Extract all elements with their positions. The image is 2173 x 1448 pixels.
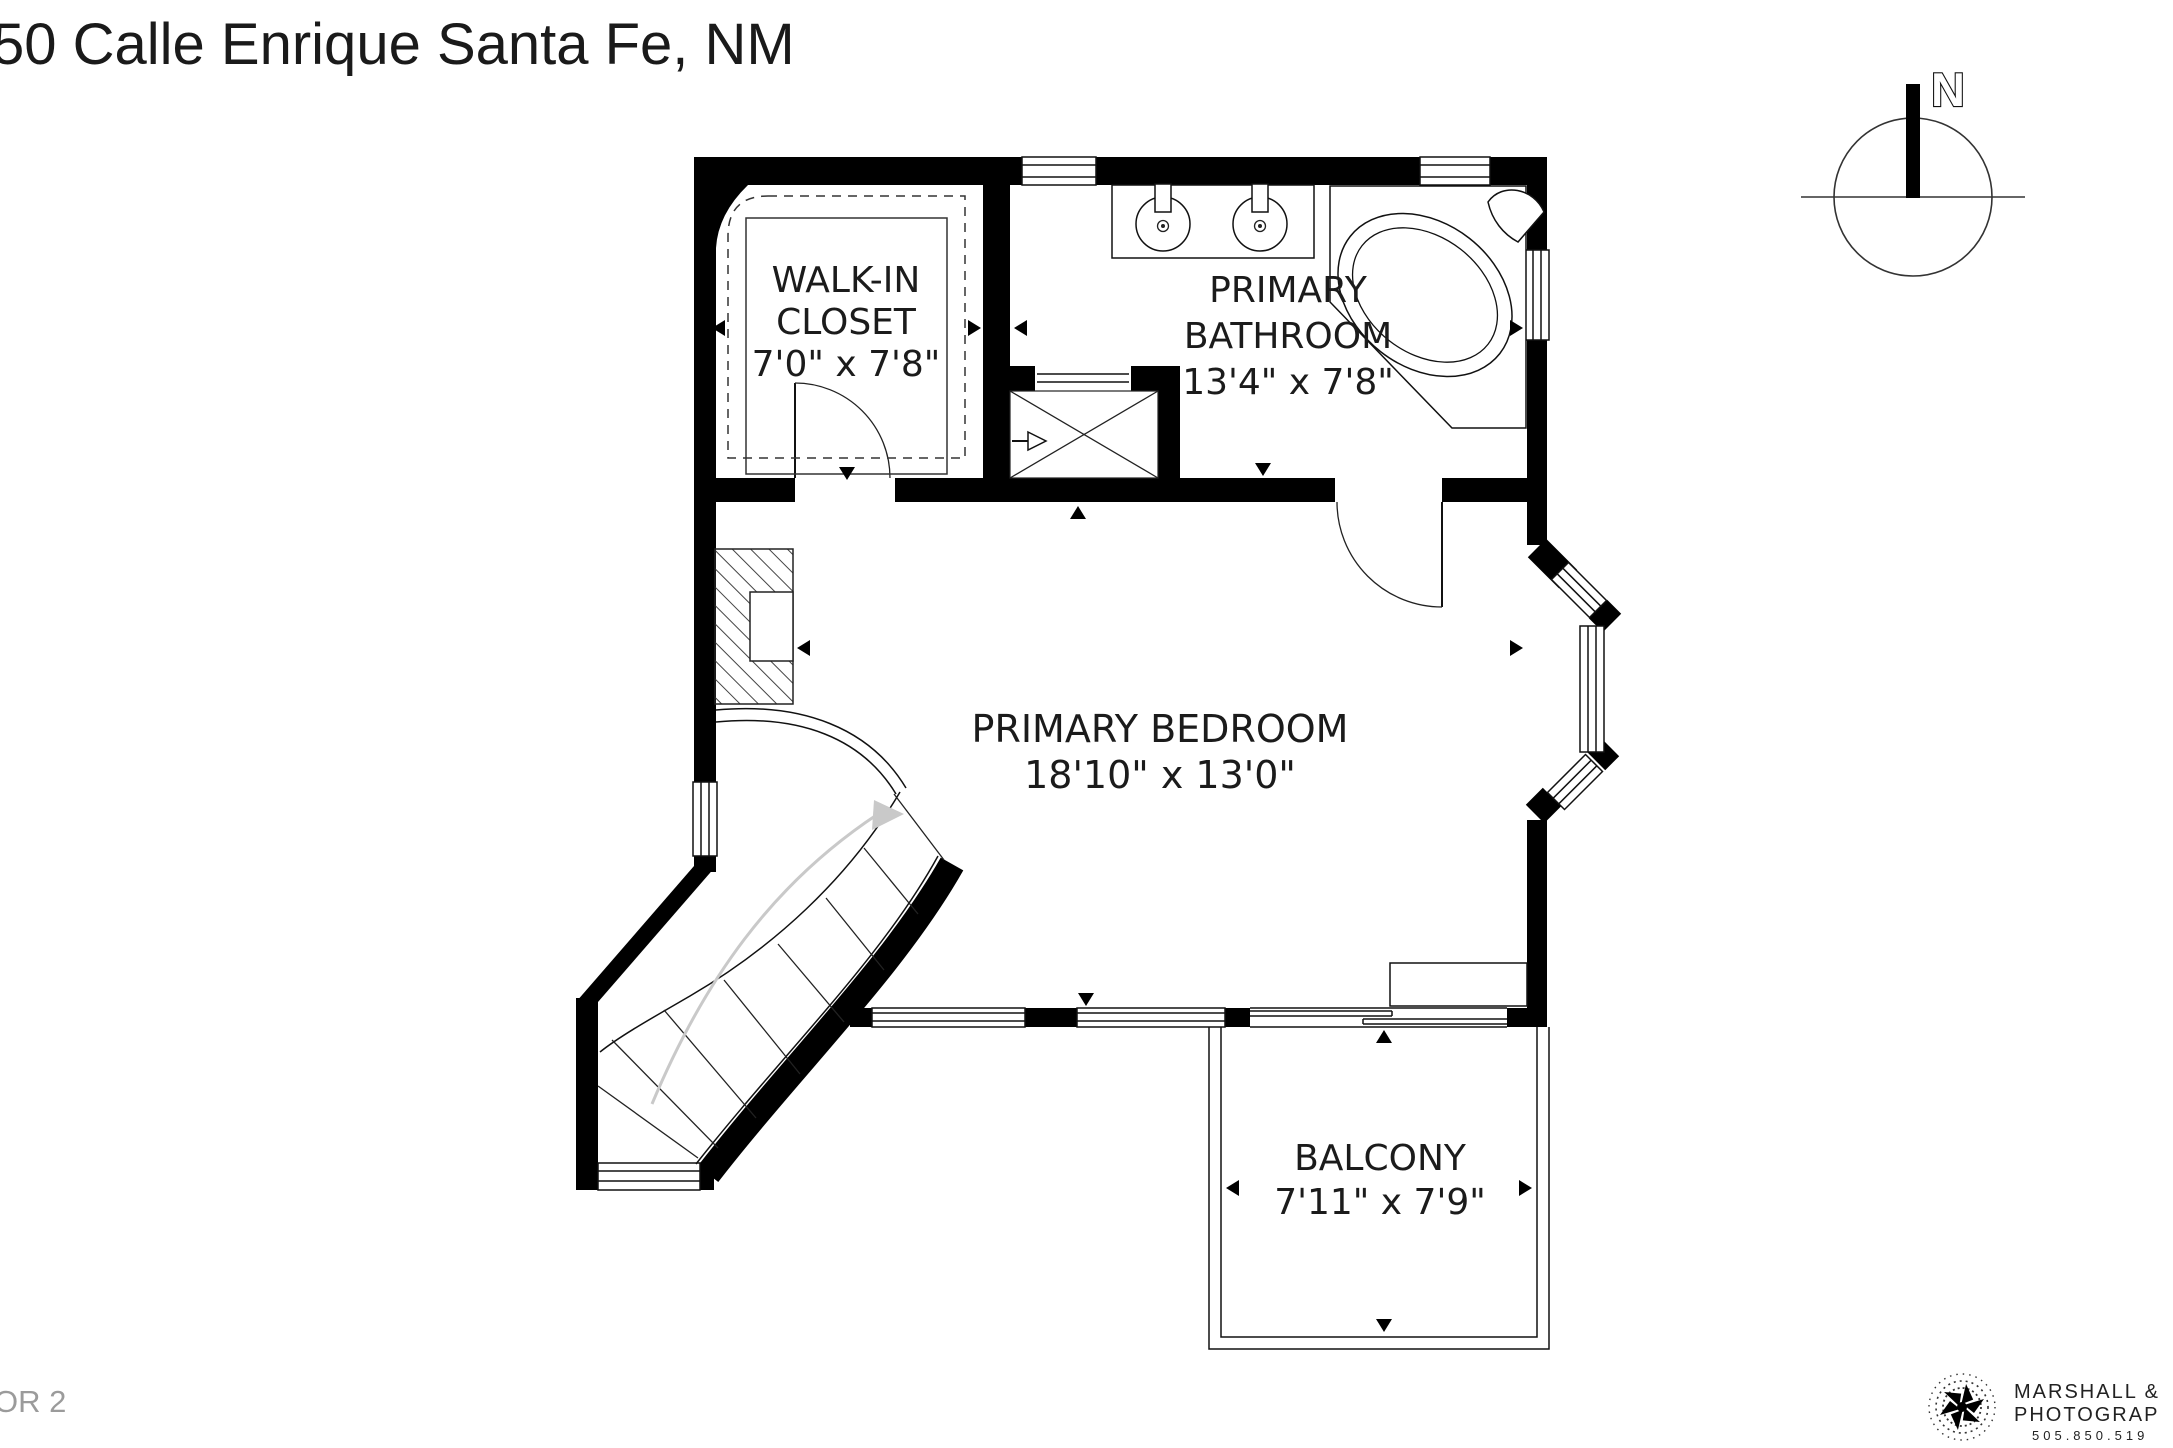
window-bathroom-right — [1525, 250, 1549, 340]
window-bedroom-left — [693, 782, 717, 856]
vanity-double-sink — [1112, 184, 1314, 258]
logo-phone: 505.850.519 — [2032, 1428, 2148, 1443]
page-title: 50 Calle Enrique Santa Fe, NM — [0, 12, 795, 77]
faucet-left-icon — [1155, 184, 1171, 212]
door-closet — [795, 383, 893, 502]
bedroom-dimensions: 18'10" x 13'0" — [1024, 753, 1296, 797]
logo-company-line2: PHOTOGRAP — [2014, 1404, 2159, 1426]
chimney-hatched — [715, 549, 793, 704]
bathroom-dimensions: 13'4" x 7'8" — [1182, 362, 1394, 403]
bay-wall-stub — [1535, 797, 1552, 814]
sliding-door-balcony — [1250, 963, 1527, 1027]
window-stairwell-bottom — [598, 1163, 700, 1190]
door-bedroom — [1335, 478, 1442, 607]
stair-direction-arrow-icon — [872, 800, 904, 830]
stair-direction-line — [652, 814, 878, 1104]
floor-plan-page: { "page": { "title": "50 Calle Enrique S… — [0, 0, 2173, 1448]
compass-north-needle — [1906, 84, 1920, 198]
rounded-inner-corner — [694, 185, 748, 248]
shower — [1010, 391, 1158, 478]
faucet-right-icon — [1252, 184, 1268, 212]
closet-label-line2: CLOSET — [776, 302, 917, 343]
bay-window — [1548, 563, 1607, 810]
bedroom-label: PRIMARY BEDROOM — [972, 707, 1349, 751]
balcony-label: BALCONY — [1294, 1138, 1467, 1179]
compass-north-label: N — [1931, 63, 1965, 116]
logo-company-line1: MARSHALL & — [2014, 1381, 2160, 1403]
floor-plan-canvas: 50 Calle Enrique Santa Fe, NM N — [0, 0, 2173, 1448]
door-shower — [1035, 366, 1131, 391]
compass-rose: N — [1801, 63, 2025, 276]
floor-number-label: OR 2 — [0, 1384, 66, 1419]
photographer-logo: MARSHALL & PHOTOGRAP 505.850.519 — [1929, 1374, 2160, 1443]
camera-shutter-icon — [1929, 1374, 1995, 1440]
balcony-dimensions: 7'11" x 7'9" — [1274, 1182, 1486, 1223]
window-bathroom-top-right — [1420, 157, 1490, 185]
bathroom-label-line2: BATHROOM — [1184, 316, 1392, 357]
bay-wall-stub — [1598, 609, 1612, 623]
sliding-door-pocket — [1390, 963, 1527, 1006]
bathroom-label-line1: PRIMARY — [1209, 270, 1368, 311]
closet-dimensions: 7'0" x 7'8" — [752, 344, 941, 385]
window-bathroom-top-left — [1022, 157, 1096, 185]
closet-label-line1: WALK-IN — [772, 260, 921, 301]
window-bedroom-bottom-1 — [872, 1008, 1025, 1027]
window-bedroom-bottom-2 — [1077, 1008, 1225, 1027]
